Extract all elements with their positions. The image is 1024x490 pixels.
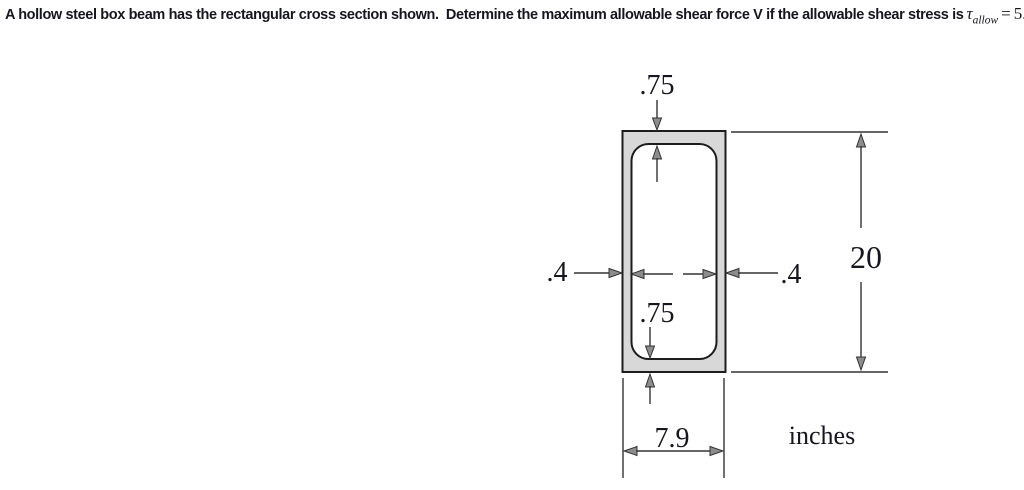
width-dim-arrowhead-left [624,447,637,456]
dim-label-bottom-thickness: .75 [640,298,675,329]
height-dim-arrowhead-down [857,357,866,370]
dim-label-height: 20 [850,239,882,275]
width-dim-arrowhead-right [710,447,723,456]
height-dim-arrowhead-up [857,134,866,147]
cross-section-figure: .75 .4 .4 .75 20 7.9 inches [0,0,1024,490]
dim-label-right-thickness: .4 [781,259,802,290]
top-thickness-arrowhead-down [653,118,662,130]
page: A hollow steel box beam has the rectangu… [0,0,1024,490]
right-thickness-arrowhead-left [726,269,739,278]
left-thickness-arrowhead-right [609,269,622,278]
dim-label-width: 7.9 [655,423,690,454]
dim-label-left-thickness: .4 [547,257,568,288]
dim-label-top-thickness: .75 [640,70,675,101]
below-box-arrowhead-up [646,374,655,387]
units-label: inches [789,421,855,450]
